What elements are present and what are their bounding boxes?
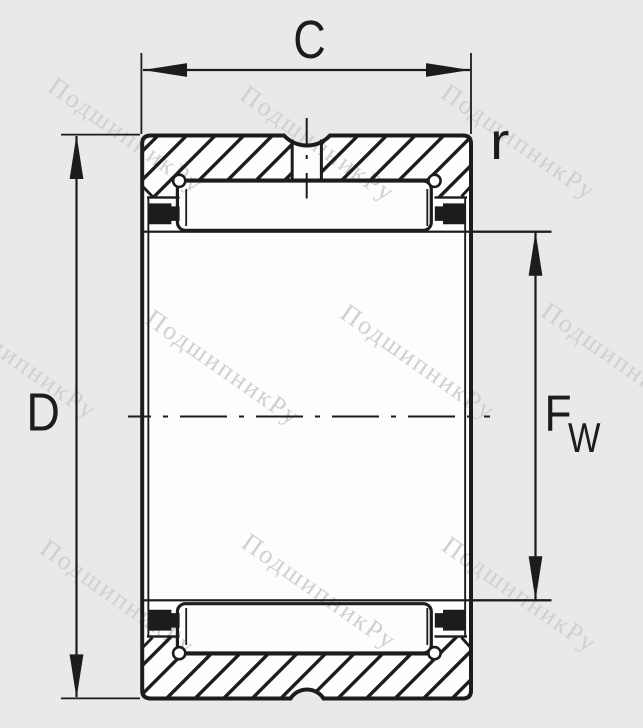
svg-text:C: C: [293, 10, 325, 70]
svg-text:W: W: [568, 415, 601, 462]
svg-text:D: D: [26, 381, 60, 442]
svg-text:r: r: [490, 112, 509, 170]
